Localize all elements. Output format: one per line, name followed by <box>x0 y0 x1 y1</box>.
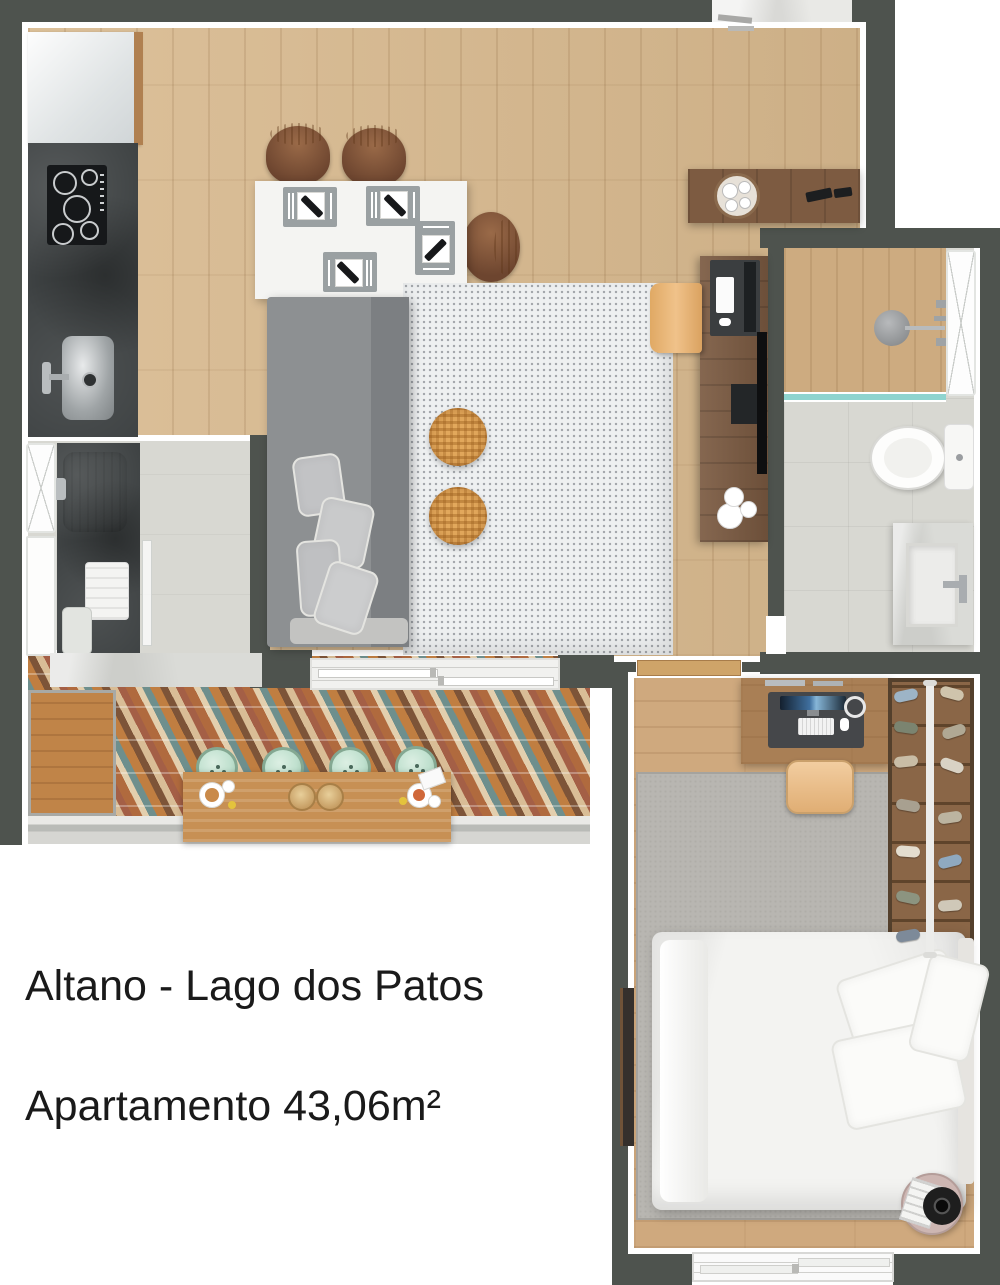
tray <box>714 173 760 219</box>
monitor-stand <box>807 710 819 716</box>
bedroom-monitor <box>780 696 846 710</box>
duvet-fold <box>660 940 708 1202</box>
cutlery <box>328 260 330 286</box>
speaker <box>923 1187 961 1225</box>
stool-seat <box>282 765 286 769</box>
bathroom-door-opening <box>766 616 786 654</box>
cutlery <box>292 193 294 219</box>
desk-chair <box>650 283 702 353</box>
rack-pole-cap <box>923 952 937 958</box>
place-setting <box>283 187 337 227</box>
fridge <box>28 32 140 145</box>
cup <box>428 795 441 808</box>
remote <box>833 187 852 198</box>
desk-shelf-item <box>813 681 843 686</box>
plan-area: Apartamento 43,06m² <box>25 1082 441 1131</box>
desk-shelf-item <box>765 680 805 686</box>
stool-seat <box>415 764 419 768</box>
flush-button <box>956 454 963 461</box>
cutlery <box>370 260 372 286</box>
cooktop-controls <box>100 171 104 211</box>
burner <box>80 221 99 240</box>
snack-bowl <box>288 783 316 811</box>
place-setting <box>366 186 420 226</box>
burner <box>63 195 91 223</box>
tv <box>757 332 767 474</box>
bedroom-mouse <box>840 718 849 731</box>
vase <box>717 503 743 529</box>
cooktop <box>47 165 107 245</box>
food <box>205 788 219 802</box>
sliding-door <box>310 658 560 690</box>
lemon <box>399 797 407 805</box>
kitchen-sink <box>62 336 114 420</box>
laundry-tub <box>63 452 127 532</box>
balcony-counter <box>183 772 451 842</box>
cutlery <box>375 192 377 218</box>
fridge-wood-edge <box>134 32 143 145</box>
floor-plan: Altano - Lago dos Patos Apartamento 43,0… <box>0 0 1000 1285</box>
cutlery <box>366 260 368 286</box>
dining-chair <box>266 126 330 184</box>
monitor <box>744 262 756 332</box>
cutlery <box>423 268 449 270</box>
cutlery <box>330 193 332 219</box>
toilet-seat <box>884 438 932 478</box>
vase <box>740 501 757 518</box>
rack-pole-cap <box>923 680 937 686</box>
vanity <box>893 523 973 645</box>
shoe <box>938 899 963 912</box>
shower-control <box>936 300 946 308</box>
vanity-faucet-spout <box>943 581 961 588</box>
laundry-basket <box>62 607 92 655</box>
sink-drain <box>82 372 98 388</box>
pouf <box>429 408 487 466</box>
stool-seat <box>216 765 220 769</box>
cup <box>222 780 235 793</box>
window-panel <box>700 1265 798 1274</box>
headphones <box>844 696 866 718</box>
remote <box>805 187 833 202</box>
burner <box>52 223 74 245</box>
shower-arm <box>905 326 945 330</box>
cup <box>722 183 738 199</box>
shoe <box>896 845 921 858</box>
kitchen-faucet-spout <box>49 374 69 380</box>
living-rug <box>403 283 673 655</box>
cutlery <box>288 193 290 219</box>
bedroom-door-leaf <box>637 660 741 676</box>
cup <box>739 197 751 209</box>
place-setting <box>323 252 377 292</box>
bedside-table <box>901 1173 963 1235</box>
cutlery <box>413 192 415 218</box>
laundry-window <box>26 443 56 533</box>
entry-door-leaf <box>728 26 754 31</box>
door-handle <box>438 676 444 685</box>
wall-left <box>0 0 22 845</box>
dining-chair <box>462 212 520 282</box>
bedroom-chair <box>786 760 854 814</box>
bedroom-tv <box>620 988 634 1146</box>
bedroom-desk <box>741 678 891 764</box>
window-handle <box>792 1264 799 1273</box>
dining-chair-back <box>494 219 518 275</box>
wall-balcony-right-pier <box>558 650 614 688</box>
glass-partition <box>142 540 152 646</box>
stool-seat <box>349 765 353 769</box>
shower-control <box>936 338 946 346</box>
cutlery <box>423 226 449 228</box>
dining-chair <box>342 128 406 186</box>
shower-glass <box>784 394 946 400</box>
snack-bowl <box>316 783 344 811</box>
vanity-faucet <box>959 575 967 603</box>
keyboard <box>716 277 734 313</box>
laptop <box>731 384 759 424</box>
sliding-door-panel <box>318 669 438 678</box>
bedroom-window <box>692 1252 894 1282</box>
place-setting <box>415 221 455 275</box>
wall-bathroom-top <box>760 228 1000 248</box>
dining-chair-back <box>346 125 402 147</box>
bedroom-keyboard <box>798 718 834 735</box>
wall-bathroom-bottom <box>760 652 1000 674</box>
food <box>413 789 425 801</box>
door-handle <box>430 668 436 677</box>
cup <box>738 181 751 194</box>
laundry-door-leaf <box>26 536 56 656</box>
sliding-door-panel <box>438 677 554 686</box>
burner <box>53 171 77 195</box>
shower-floor <box>784 248 946 396</box>
sofa-backrest <box>371 297 409 647</box>
cup <box>725 199 738 212</box>
toilet-bowl <box>870 426 946 490</box>
balcony-sill <box>50 653 262 687</box>
lemon <box>228 801 236 809</box>
bathroom-window <box>946 250 976 396</box>
wall-right-upper <box>864 0 895 235</box>
toilet-tank <box>944 424 974 490</box>
cutlery <box>371 192 373 218</box>
burner <box>81 169 98 186</box>
sideboard <box>688 169 860 223</box>
balcony-deck <box>28 690 116 816</box>
mouse <box>719 318 731 326</box>
rack-pole <box>926 682 934 958</box>
wall-living-bathroom <box>768 228 784 618</box>
pouf <box>429 487 487 545</box>
window-panel <box>798 1258 890 1267</box>
laundry-floor <box>140 443 250 655</box>
plan-title: Altano - Lago dos Patos <box>25 962 484 1011</box>
dining-chair-back <box>270 123 326 145</box>
